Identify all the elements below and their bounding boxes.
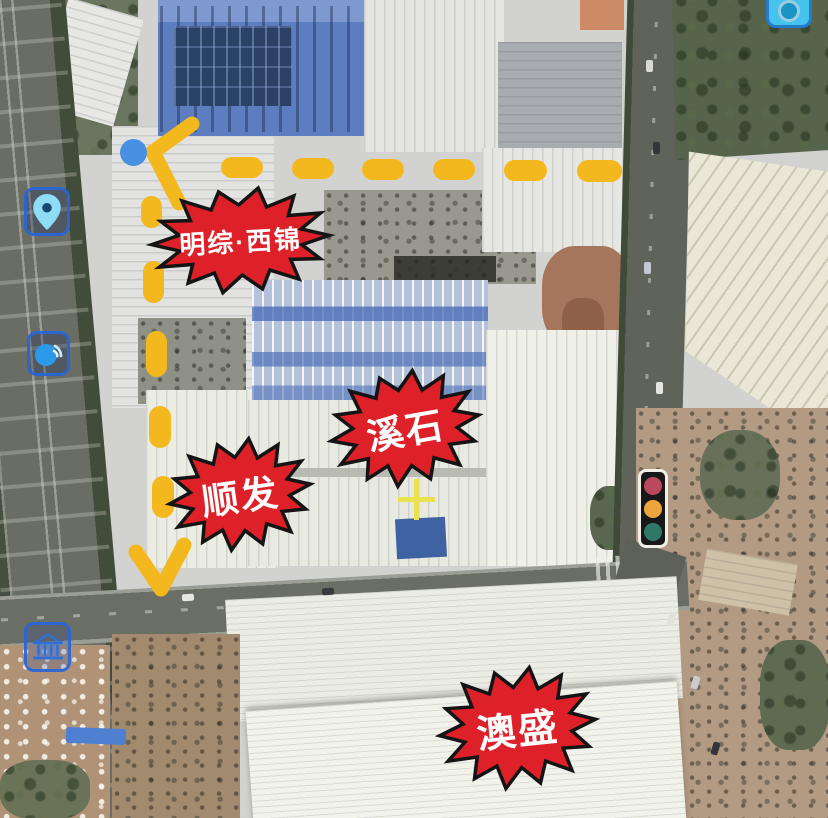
label-burst-aosheng: 澳盛 <box>430 654 606 801</box>
route-dash-h <box>221 157 263 178</box>
crosshair-icon <box>398 497 435 502</box>
poi-location-pin[interactable] <box>24 187 70 236</box>
camera-lens-icon <box>778 0 800 22</box>
route-start-dot <box>120 139 147 166</box>
poi-public-building[interactable] <box>24 622 71 672</box>
label-burst-shunfa: 顺发 <box>158 424 321 563</box>
location-pin-icon <box>33 194 61 230</box>
label-burst-mingzong-xijin: 明综·西锦 <box>145 178 336 302</box>
vehicle-car <box>644 262 651 274</box>
public-building-icon <box>30 631 66 663</box>
traffic-light-red <box>644 477 662 495</box>
vehicle-car <box>653 142 660 154</box>
building-topmid-gray-roof <box>498 42 622 152</box>
terrain-bottomright-trees <box>700 430 780 520</box>
vehicle-blue-bus <box>66 727 127 745</box>
route-dash-h <box>292 158 334 179</box>
terrain-bottomleft-scrapyard <box>112 634 240 818</box>
burst-label-text: 澳盛 <box>474 695 561 759</box>
traffic-light-amber <box>644 500 662 518</box>
traffic-light-green <box>644 523 662 541</box>
poi-voice-signal[interactable] <box>27 331 70 376</box>
route-dash-h <box>433 159 475 180</box>
route-dash-h <box>362 159 404 180</box>
satellite-map[interactable]: 明综·西锦 溪石 顺发 澳盛 <box>0 0 828 818</box>
terrain-bottomright-trees2 <box>760 640 828 750</box>
vehicle-car <box>322 588 334 596</box>
poi-camera[interactable] <box>766 0 812 28</box>
route-dash-h <box>504 160 547 181</box>
route-dash-h <box>577 160 622 182</box>
traffic-light-icon <box>638 469 668 548</box>
route-dash-v <box>149 406 171 448</box>
route-dash-v <box>146 331 167 377</box>
terrain-bottomleft-trees <box>0 760 90 818</box>
burst-label-text: 顺发 <box>198 462 283 526</box>
building-blue-factory-solar <box>174 26 292 106</box>
building-orange-block <box>580 0 624 30</box>
voice-signal-icon <box>33 338 65 370</box>
vehicle-car <box>646 60 653 72</box>
building-small-blue-roof <box>395 517 447 560</box>
terrain-center-dark-clutter <box>394 256 496 282</box>
building-topmid-warehouse <box>364 0 504 152</box>
vehicle-car <box>656 382 663 394</box>
burst-label-text: 明综·西锦 <box>178 218 302 261</box>
